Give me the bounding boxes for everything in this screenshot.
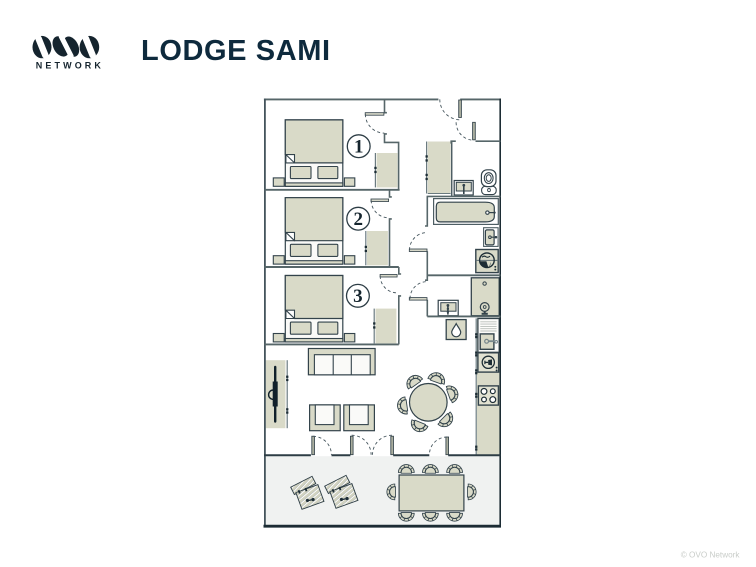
svg-text:LODGE SAMI: LODGE SAMI — [141, 35, 331, 67]
svg-text:3: 3 — [353, 286, 363, 307]
svg-text:NETWORK: NETWORK — [36, 61, 104, 71]
svg-text:© OVO Network: © OVO Network — [681, 551, 741, 560]
svg-text:2: 2 — [353, 209, 363, 230]
svg-text:1: 1 — [354, 136, 364, 157]
